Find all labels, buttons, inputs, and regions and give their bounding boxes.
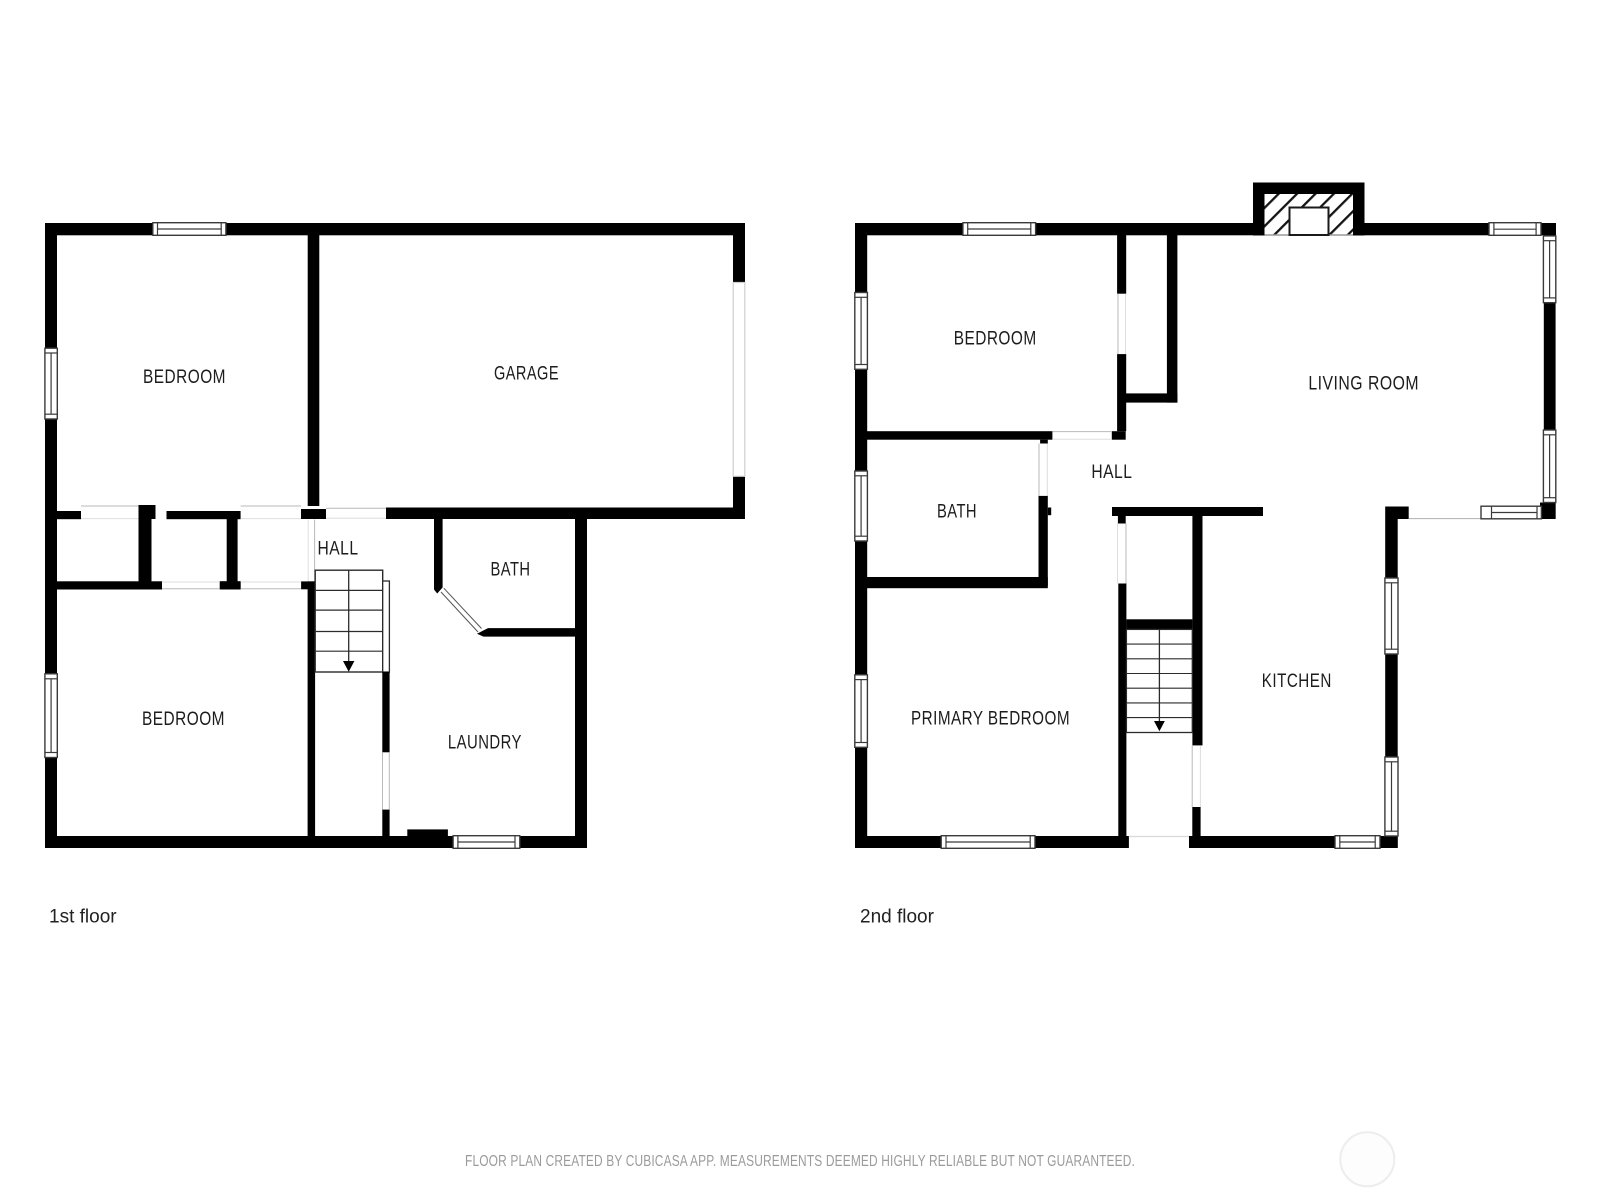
svg-text:GARAGE: GARAGE	[494, 363, 559, 385]
svg-text:PRIMARY BEDROOM: PRIMARY BEDROOM	[911, 708, 1070, 730]
svg-text:KITCHEN: KITCHEN	[1262, 670, 1332, 692]
svg-text:BEDROOM: BEDROOM	[954, 328, 1037, 350]
svg-text:BATH: BATH	[937, 501, 977, 523]
svg-text:LIVING ROOM: LIVING ROOM	[1308, 373, 1419, 395]
svg-text:1st floor: 1st floor	[49, 907, 117, 928]
svg-text:BEDROOM: BEDROOM	[143, 366, 226, 388]
svg-text:BEDROOM: BEDROOM	[142, 708, 225, 730]
svg-text:HALL: HALL	[1091, 461, 1132, 483]
svg-text:LAUNDRY: LAUNDRY	[448, 732, 522, 754]
svg-text:FLOOR PLAN CREATED BY CUBICASA: FLOOR PLAN CREATED BY CUBICASA APP. MEAS…	[465, 1153, 1135, 1170]
svg-text:2nd floor: 2nd floor	[860, 907, 935, 928]
svg-text:BATH: BATH	[491, 559, 531, 581]
svg-text:HALL: HALL	[318, 538, 359, 560]
